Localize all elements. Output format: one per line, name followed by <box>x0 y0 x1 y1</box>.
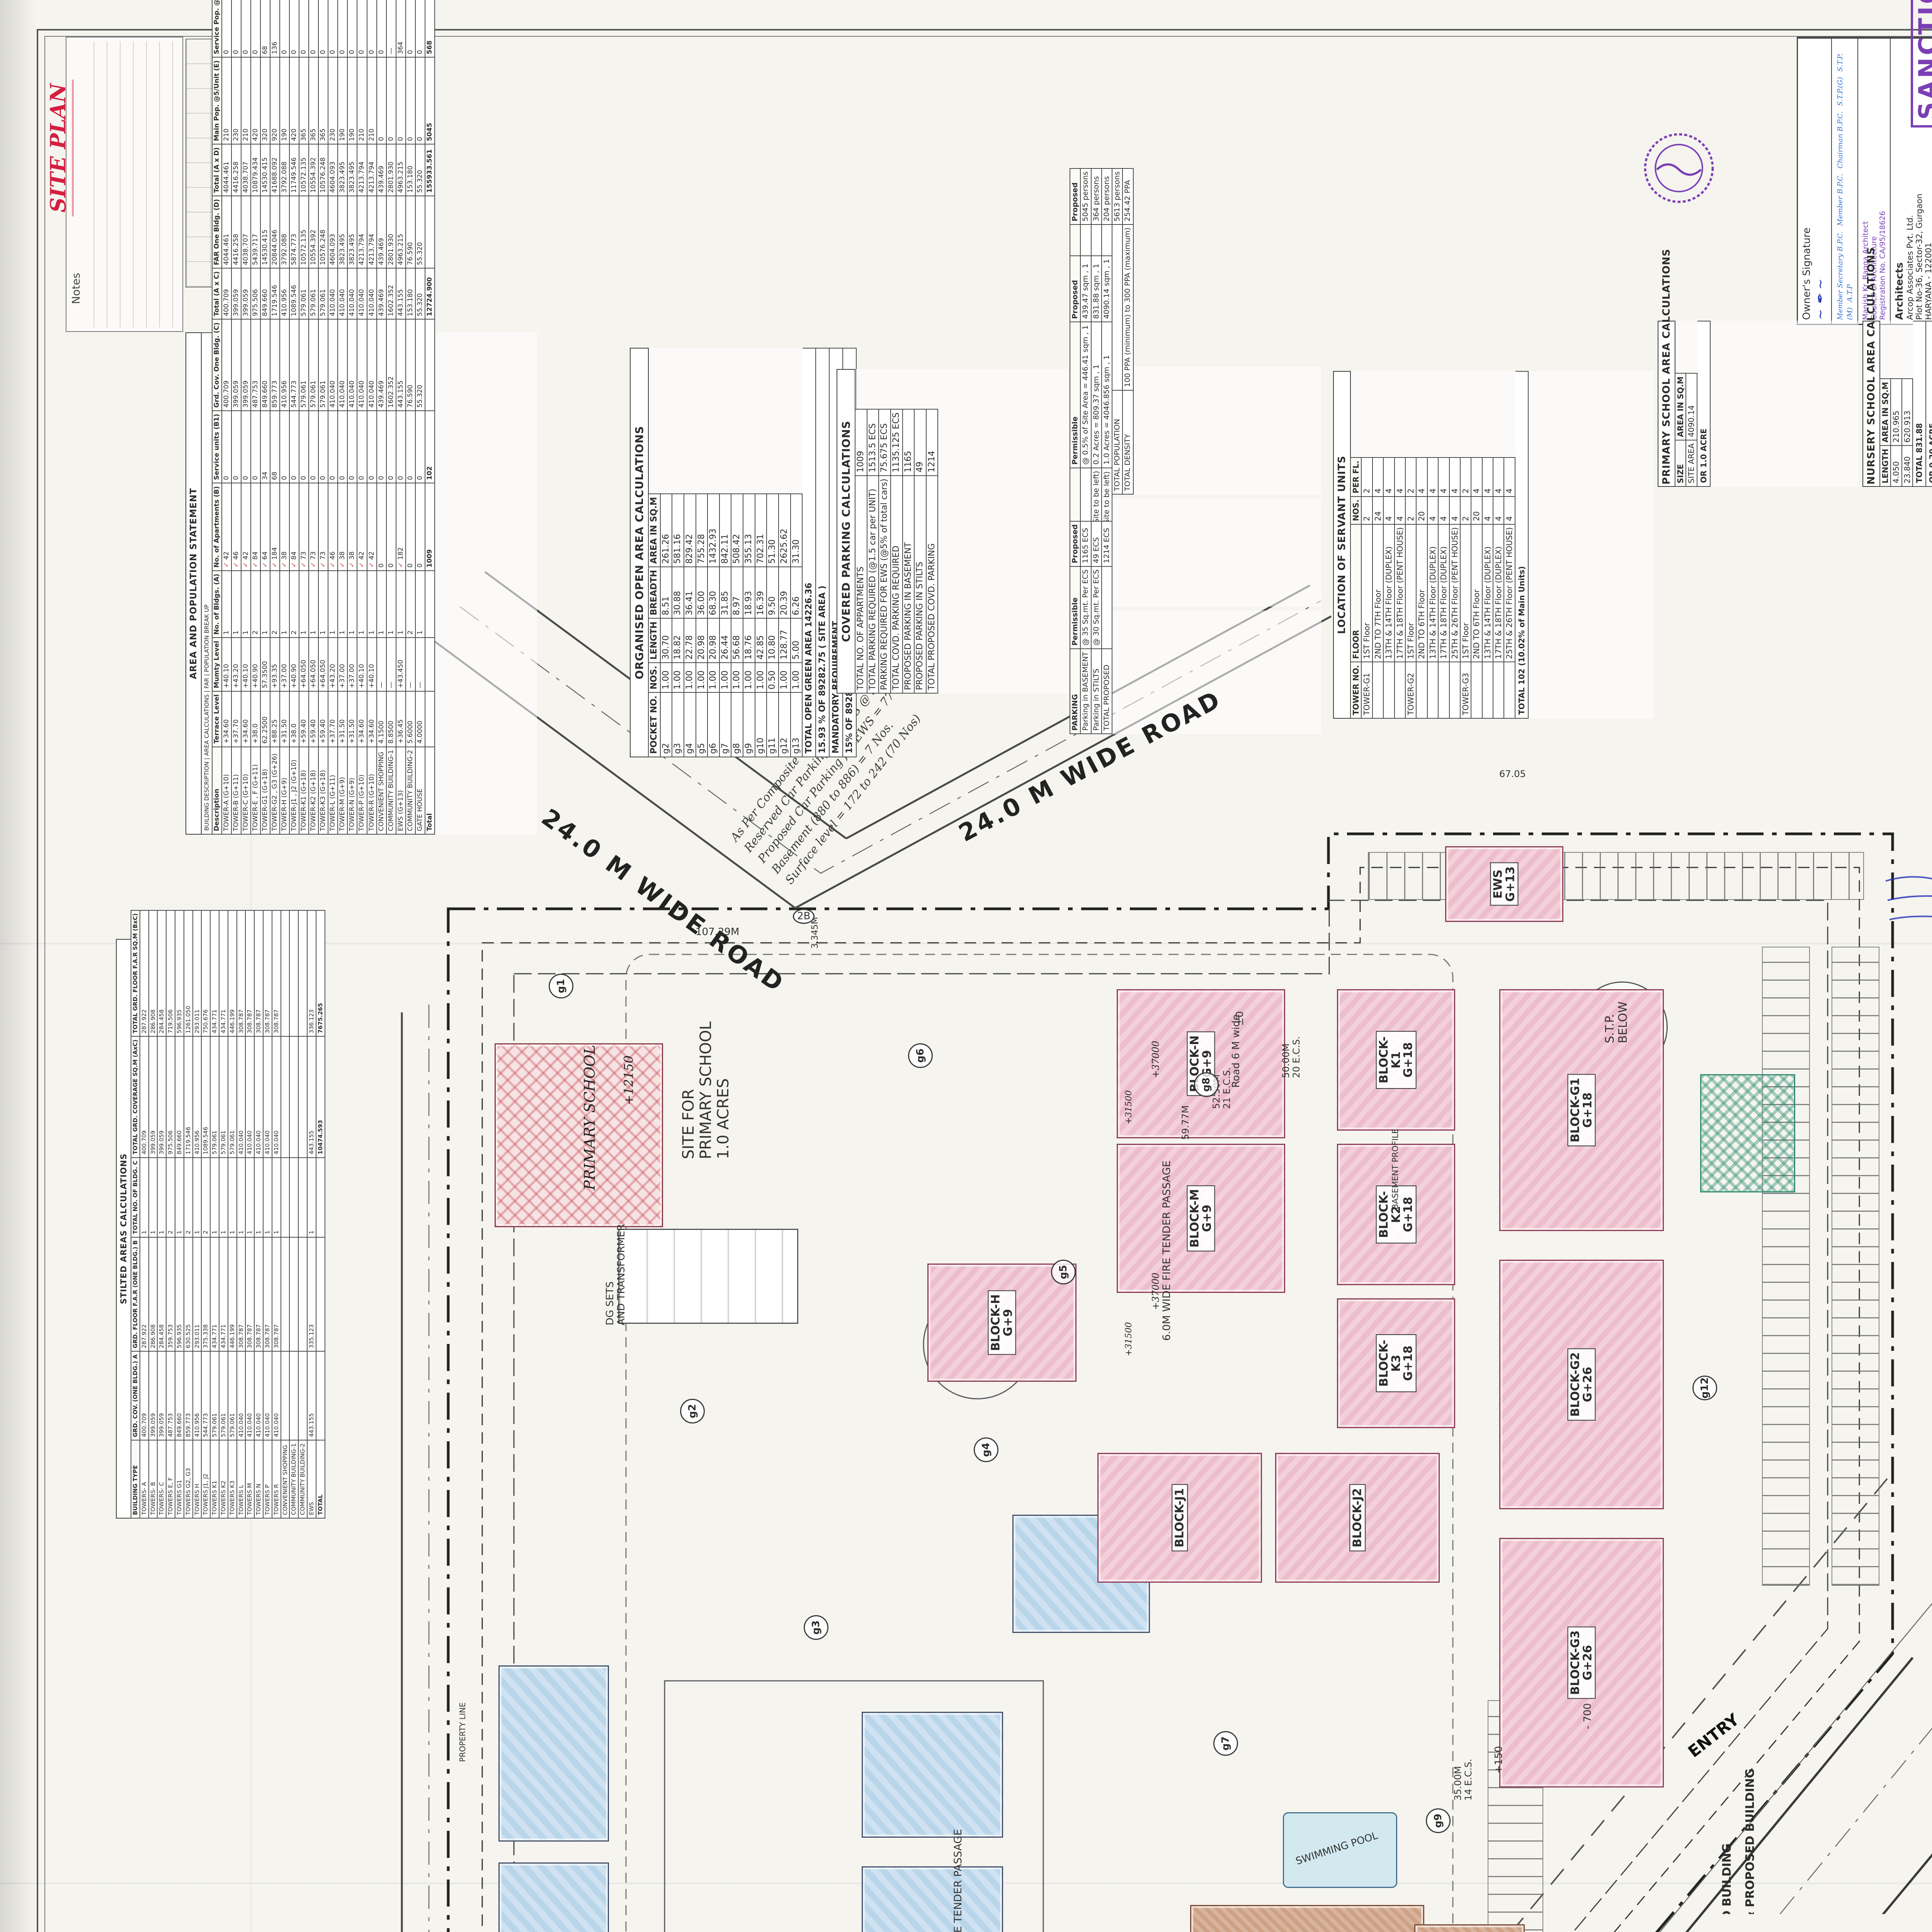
table-cell: 42.85 <box>755 618 767 663</box>
table-cell: 364 <box>396 0 406 57</box>
table-cell: 365 <box>318 57 328 144</box>
table-cell: 4 <box>1438 497 1449 524</box>
table-stilted: STILTED AREAS CALCULATIONSBUILDING TYPEG… <box>116 939 301 1519</box>
table-cell: 76.590 <box>406 196 415 268</box>
table-cell: 399.059 <box>157 1351 166 1440</box>
table-cell: 0 <box>406 483 415 571</box>
table-total-cell: 568 <box>425 0 435 57</box>
table-row: g101.0042.8516.39702.31 <box>755 494 767 757</box>
table-cell: +88.25 <box>270 691 280 747</box>
table-cell: 579.061 <box>228 1351 237 1440</box>
table-row: TOWER-P (G+10)+34.60+40.101✓ 420410.0404… <box>357 0 367 834</box>
table-cell: ✓ 42 <box>241 483 251 571</box>
table-cell <box>298 1036 307 1157</box>
pocket-g12: g12 <box>1692 1376 1717 1400</box>
table-cell: 4 <box>1482 457 1493 497</box>
table-cell: g2 <box>660 692 672 757</box>
table-cell: 286.908 <box>149 910 158 1037</box>
block-label: BLOCK-K1 G+18 <box>1376 1031 1417 1089</box>
table-cell: 287.922 <box>140 910 149 1037</box>
table-cell: +37.00 <box>347 638 357 691</box>
table-cell: 0 <box>328 0 338 57</box>
table-cell: 2 <box>1361 497 1372 524</box>
table-cell: 487.753 <box>251 319 260 411</box>
table-cell: 443.155 <box>307 1036 316 1157</box>
pocket-g7: g7 <box>1213 1731 1238 1756</box>
table-row: g31.0018.8230.88581.16 <box>672 494 684 757</box>
table-cell: 4213.794 <box>357 144 367 196</box>
table-cell: 36.00 <box>696 567 708 618</box>
table-cell <box>1504 662 1515 718</box>
table-cell: 1 <box>210 1158 219 1237</box>
block-label: EWS G+13 <box>1490 862 1519 906</box>
table-cell: 1 <box>386 571 396 638</box>
table-cell: 30.70 <box>660 618 672 663</box>
table-cell: 22.78 <box>684 618 696 663</box>
block-block-n: BLOCK-N G+9 <box>1117 989 1285 1138</box>
table-cell: 20844.046 <box>270 196 280 268</box>
table-cell <box>1493 662 1504 718</box>
table-row: TOWERS K3579.061446.1991579.061446.199 <box>228 910 237 1518</box>
table-cell: 76.590 <box>406 319 415 411</box>
table-cell: 0 <box>251 0 260 57</box>
block-label: BLOCK-G1 G+18 <box>1568 1074 1596 1146</box>
table-total-cell: 155933.561 <box>425 144 435 196</box>
table-cell: TOWERS- C <box>157 1440 166 1518</box>
table-cell: 579.061 <box>219 1351 228 1440</box>
table-cell: 1 <box>377 571 386 638</box>
table-cell: 446.199 <box>228 910 237 1037</box>
column-header: Service Pop. @2/Unit (F) <box>212 0 222 57</box>
column-header: Proposed <box>1070 168 1080 224</box>
red-check-mark: ✓ <box>300 560 308 568</box>
table-cell: 4213.794 <box>357 196 367 268</box>
table-cell: TOWER-P (G+10) <box>357 747 367 834</box>
data-table: TOTAL NO. OF APPARTMENTS1009TOTAL PARKIN… <box>855 409 938 694</box>
table-row: TOWERS N410.040308.7871410.040308.787 <box>254 910 263 1518</box>
block-label: BLOCK-G3 G+26 <box>1568 1626 1596 1699</box>
table-cell <box>298 910 307 1037</box>
table-cell: 2 <box>1460 497 1471 524</box>
table-title: PRIMARY SCHOOL AREA CALCULATIONS <box>1658 321 1675 487</box>
table-cell: 1.00 <box>672 663 684 692</box>
table-footer: TOTAL OPEN GREEN AREA 14226.36 <box>803 348 816 757</box>
red-check-mark: ✓ <box>252 560 259 568</box>
plan-label: 59.77M <box>1180 1105 1191 1140</box>
table-cell: 1135.125 ECS <box>891 409 903 475</box>
table-header-row: PARKINGPermissibleProposed <box>1070 521 1080 734</box>
block-community: COMMUNITY BUILDING <box>1190 1905 1424 1932</box>
table-row: TOWER-M (G+9)+31.50+37.001✓ 380410.04041… <box>338 0 347 834</box>
table-cell: +37.70 <box>328 691 338 747</box>
plan-label: 107.29M <box>696 927 739 938</box>
table-row: TOWERS M410.040308.7871410.040308.787 <box>245 910 254 1518</box>
drawing-sheet: SITE PLAN Notes <box>0 0 1932 1932</box>
table-cell: 439.469 <box>377 268 386 319</box>
table-cell: 375.338 <box>201 1237 210 1351</box>
table-row: TOTAL DENSITY100 PPA (minimum) to 300 PP… <box>1122 168 1133 494</box>
table-cell: COMMUNITY BUILDING-2 <box>298 1440 307 1518</box>
table-cell: +40.90 <box>251 638 260 691</box>
table-cell: 410.040 <box>367 319 377 411</box>
table-cell: TOWER-C (G+10) <box>241 747 251 834</box>
table-cell: Parking in STILTS <box>1091 649 1102 734</box>
table-cell: 36.41 <box>684 567 696 618</box>
table-cell: 359.753 <box>166 1237 175 1351</box>
table-cell: 0 <box>396 57 406 144</box>
table-cell: 0 <box>377 57 386 144</box>
table-cell: @ 35 Sq.mt. Per ECS <box>1080 566 1091 649</box>
column-header: GRD. FLOOR F.A.R (ONE BLDG.) B <box>131 1237 140 1351</box>
plan-label: DG SETS AND TRANSFORMER <box>605 1224 627 1325</box>
table-row: SITE AREA4090.14 <box>1686 373 1697 486</box>
table-cell: 0 <box>328 411 338 483</box>
table-cell: 41688.092 <box>270 144 280 196</box>
table-cell: 1 <box>149 1158 158 1237</box>
electric-substation-patch <box>1700 1074 1795 1192</box>
table-cell: 400.709 <box>140 1036 149 1157</box>
table-cell: 1 <box>157 1158 166 1237</box>
table-cell: 365 <box>299 57 309 144</box>
table-cell: ✓ 84 <box>289 483 299 571</box>
table-nursery_school-content: NURSERY SCHOOL AREA CALCULATIONSLENGTHAR… <box>1862 321 1932 487</box>
table-cell: 1.00 <box>660 663 672 692</box>
table-cell: 1 <box>222 571 231 638</box>
table-cell: TOWER-H (G+9) <box>280 747 289 834</box>
table-header-row: TOWER NO.FLOORNOS.PER FL. <box>1350 457 1361 718</box>
table-row: TOWERS- A400.709287.9221400.709287.922 <box>140 910 149 1518</box>
table-cell: 16.39 <box>755 567 767 618</box>
table-cell: 20.98 <box>707 618 719 663</box>
table-servant-units: LOCATION OF SERVANT UNITSTOWER NO.FLOORN… <box>1333 371 1654 719</box>
table-cell: 0 <box>386 483 396 571</box>
plan-label: BASEMENT PROFILE <box>1391 1129 1400 1209</box>
table-cell: 410.040 <box>263 1036 272 1157</box>
table-row: TOWERS- B399.059286.9081399.059286.908 <box>149 910 158 1518</box>
table-cell: TOWERS K2 <box>219 1440 228 1518</box>
table-cell: 204 persons <box>1102 168 1112 224</box>
table-cell <box>289 910 298 1037</box>
table-row: 13TH & 14TH Floor (DUPLEX)44 <box>1383 457 1394 718</box>
table-cell: 1.00 <box>684 663 696 692</box>
table-cell: 439.469 <box>377 144 386 196</box>
table-cell: TOTAL PROPOSED COVD. PARKING <box>926 476 938 693</box>
table-cell: 5.00 <box>791 618 803 663</box>
red-check-mark: ✓ <box>397 560 405 568</box>
table-total-cell: 7675.265 <box>316 910 325 1037</box>
block-label: BLOCK-J2 <box>1349 1484 1366 1551</box>
table-cell: 1165 ECS <box>1080 521 1091 566</box>
table-row: 17TH & 18TH Floor (DUPLEX)44 <box>1438 457 1449 718</box>
column-header: FLOOR <box>1350 524 1361 662</box>
table-cell: 1513.5 ECS <box>867 409 879 475</box>
table-cell: 434.771 <box>210 1237 219 1351</box>
table-total-cell: 10474.593 <box>316 1036 325 1157</box>
table-row: TOTAL PROPOSED COVD. PARKING1214 <box>926 409 938 693</box>
column-header: Mumty Level <box>212 638 222 691</box>
table-cell <box>1102 566 1112 649</box>
table-cell: 4213.794 <box>367 196 377 268</box>
table-cell: 1089.546 <box>289 268 299 319</box>
table-header-row: BUILDING TYPEGRD. COV. (ONE BLDG.) AGRD.… <box>131 910 140 1518</box>
table-cell <box>281 1158 290 1237</box>
table-cell: 920 <box>270 57 280 144</box>
red-check-mark: ✓ <box>329 560 337 568</box>
table-cell: 0 <box>415 411 425 483</box>
red-check-mark: ✓ <box>281 560 288 568</box>
table-row: 25TH & 26TH Floor (PENT HOUSE)44 <box>1504 457 1515 718</box>
table-cell: 1602.352 <box>386 319 396 411</box>
table-cell: 10576.248 <box>318 196 328 268</box>
plan-label: 50.00M 20 E.C.S. <box>1281 1036 1302 1078</box>
column-header: POCKET NO. <box>648 692 660 757</box>
table-cell: 849.660 <box>175 1351 184 1440</box>
table-row: 4.050210.965 <box>1891 379 1901 486</box>
column-header: PARKING <box>1070 649 1080 734</box>
table-cell: 286.908 <box>149 1237 158 1351</box>
table-cell: +38.0 <box>251 691 260 747</box>
table-cell: 4416.258 <box>231 144 241 196</box>
table-cell: 3823.495 <box>347 196 357 268</box>
table-cell: 308.787 <box>263 910 272 1037</box>
table-total-cell <box>425 319 435 411</box>
table-cell: 1 <box>193 1158 202 1237</box>
table-cell: 596.935 <box>175 910 184 1037</box>
column-header: Main Pop. @5/Unit (E) <box>212 57 222 144</box>
table-cell: 210.965 <box>1891 379 1901 446</box>
table-cell: 365 <box>309 57 318 144</box>
table-cell: 4 <box>1482 497 1493 524</box>
table-cell: TOWER-J1 , J2 (G+10) <box>289 747 299 834</box>
table-cell: 0.50 <box>767 663 779 692</box>
table-cell: 0 <box>231 0 241 57</box>
block-block-m: BLOCK-M G+9 <box>1117 1144 1285 1293</box>
table-cell: g9 <box>743 692 755 757</box>
table-cell: ✓ 73 <box>309 483 318 571</box>
table-cell: 0 <box>377 483 386 571</box>
table-total-row: Total100910212724.900155933.561504556854… <box>425 0 435 834</box>
table-cell: 2 <box>270 571 280 638</box>
table-cell: 1 <box>241 571 251 638</box>
table-cell: 308.787 <box>254 910 263 1037</box>
table-cell: COMMUNITY BUILDING-1 <box>289 1440 298 1518</box>
table-cell: 487.753 <box>166 1351 175 1440</box>
table-cell: 0 <box>367 411 377 483</box>
table-row: PROPOSED PARKING IN BASEMENT1165 <box>903 409 915 693</box>
table-cell: 579.061 <box>228 1036 237 1157</box>
table-cell: 210 <box>241 57 251 144</box>
table-covered_parking-content: COVERED PARKING CALCULATIONSTOTAL NO. OF… <box>837 369 1068 694</box>
table-cell: ✓ 38 <box>338 483 347 571</box>
table-cell: 2 <box>1361 457 1372 497</box>
table-total-cell: 5045 <box>425 57 435 144</box>
table-cell: 842.11 <box>719 494 731 567</box>
table-cell: 0 <box>318 0 328 57</box>
table-cell: 10554.392 <box>309 196 318 268</box>
paper-edge <box>0 0 37 1932</box>
table-cell: 410.040 <box>328 319 338 411</box>
block-label: BLOCK-H G+9 <box>988 1291 1016 1355</box>
table-cell: PROPOSED PARKING IN BASEMENT <box>903 476 915 693</box>
column-header: SIZE <box>1675 440 1686 486</box>
table-cell: 3823.495 <box>347 144 357 196</box>
table-covered-parking: COVERED PARKING CALCULATIONSTOTAL NO. OF… <box>837 369 1068 694</box>
parking-stalls <box>1368 852 1864 900</box>
table-cell <box>1416 662 1427 718</box>
data-table: PARKINGPermissibleProposedParking in BAS… <box>1070 521 1112 734</box>
table-cell: 410.040 <box>254 1351 263 1440</box>
column-header: Terrace Level <box>212 691 222 747</box>
table-cell: TOWER-B (G+11) <box>231 747 241 834</box>
table-cell: TOWERS K1 <box>210 1440 219 1518</box>
table-cell: 579.061 <box>309 319 318 411</box>
table-cell: 1 <box>415 571 425 638</box>
table-cell <box>289 1237 298 1351</box>
table-row: TOWERS J1, J2544.773375.33821089.546750.… <box>201 910 210 1518</box>
table-cell: 579.061 <box>299 268 309 319</box>
table-cell: 284.458 <box>157 910 166 1037</box>
red-check-mark: ✓ <box>271 560 279 568</box>
table-cell: 2ND TO 7TH Floor <box>1372 524 1383 662</box>
table-cell: 0 <box>231 411 241 483</box>
table-cell: TOWER-K2 (G+18) <box>309 747 318 834</box>
table-cell: 0 <box>241 0 251 57</box>
table-cell: 4 <box>1416 457 1427 497</box>
column-header: LENGTH <box>1880 446 1891 486</box>
red-check-mark: ✓ <box>290 560 298 568</box>
table-stilted-content: STILTED AREAS CALCULATIONSBUILDING TYPEG… <box>116 939 301 1519</box>
table-cell: 4 <box>1427 457 1438 497</box>
table-total-row: TOTAL10474.5937675.265 <box>316 910 325 1518</box>
table-cell: 410.040 <box>254 1036 263 1157</box>
pocket-g1: g1 <box>549 974 573 998</box>
table-cell: 4 <box>1395 457 1405 497</box>
table-total-cell <box>316 1158 325 1237</box>
table-row: PARKING REQUIRED FOR EWS (@5% of total c… <box>879 409 891 693</box>
table-row: TOWER-G1 (G+18)62.250057.35001✓ 6434849.… <box>260 0 270 834</box>
table-cell: +64.050 <box>299 638 309 691</box>
plan-label: +37000 <box>1151 1273 1161 1310</box>
table-header-row: SIZEAREA IN SQ.M <box>1675 373 1686 486</box>
table-row: 25TH & 26TH Floor (PENT HOUSE)44 <box>1449 457 1460 718</box>
plan-label: +150 <box>1493 1746 1505 1774</box>
table-cell: 10572.135 <box>299 144 309 196</box>
table-cell: 1602.352 <box>386 268 396 319</box>
column-header: Description <box>212 747 222 834</box>
table-cell: g12 <box>779 692 791 757</box>
table-cell: 1 <box>328 571 338 638</box>
table-cell: 1.00 <box>755 663 767 692</box>
plan-label: 6.0M WIDE FIRE TENDER PASSAGE <box>952 1829 964 1932</box>
table-cell: ✓ 73 <box>318 483 328 571</box>
table-cell: 439.469 <box>377 319 386 411</box>
table-cell: 410.040 <box>263 1351 272 1440</box>
table-cell: — <box>415 638 425 691</box>
table-row: TOWER-A (G+10)+34.60+40.101✓ 420400.7094… <box>222 0 231 834</box>
table-cell: 0 <box>318 411 328 483</box>
table-cell: +40.90 <box>289 638 299 691</box>
table-cell: 1.00 <box>696 663 708 692</box>
table-row: TOWERS K2579.061434.7711579.061434.771 <box>219 910 228 1518</box>
table-cell: 0 <box>222 0 231 57</box>
table-cell: TOTAL COVD. PARKING REQUIRED <box>891 476 903 693</box>
table-cell: 10554.392 <box>309 144 318 196</box>
table-cell: 410.040 <box>357 268 367 319</box>
column-header: No. of Apartments (B) <box>212 483 222 571</box>
table-title: AREA AND POPULATION STATEMENT <box>185 332 202 835</box>
table-cell: 4.050 <box>1891 446 1901 486</box>
table-cell: 56.68 <box>731 618 743 663</box>
table-cell: 23.840 <box>1902 446 1913 486</box>
column-header: AREA IN SQ.M <box>1880 379 1891 446</box>
column-header: Permissible <box>1070 322 1080 468</box>
parking-stalls <box>1762 947 1810 1586</box>
table-cell: TOWER-L (G+11) <box>328 747 338 834</box>
table-cell: 4090.14 sqm , 1 <box>1102 256 1112 322</box>
plan-label: 67.05 <box>1499 769 1526 779</box>
table-cell: 1 <box>280 571 289 638</box>
plan-label: 6.0M WIDE FIRE TENDER PASSAGE <box>1161 1160 1173 1341</box>
notes-mini-title: Notes <box>70 273 82 304</box>
table-cell: 1 <box>347 571 357 638</box>
table-cell: 190 <box>338 57 347 144</box>
block-block-g2: BLOCK-G2 G+26 <box>1499 1260 1664 1509</box>
table-cell: 0 <box>386 57 396 144</box>
table-cell: — <box>386 638 396 691</box>
table-row: 13TH & 14TH Floor (DUPLEX)44 <box>1427 457 1438 718</box>
data-table: DescriptionTerrace LevelMumty LevelNo. o… <box>212 0 435 835</box>
plan-label: PROPERTY LINE <box>458 1702 467 1762</box>
table-cell: 308.787 <box>237 1237 246 1351</box>
table-cell: 1 <box>338 571 347 638</box>
table-cell: 4038.707 <box>241 144 251 196</box>
table-cell: 859.773 <box>184 1351 193 1440</box>
table-cell: TOWERS L <box>237 1440 246 1518</box>
table-cell: 1261.050 <box>184 910 193 1037</box>
table-cell: 1089.546 <box>201 1036 210 1157</box>
pocket-g9: g9 <box>1426 1808 1451 1833</box>
table-footer: OR 1.0 ACRE <box>1697 321 1711 487</box>
table-cell: 31.30 <box>791 494 803 567</box>
table-cell <box>281 1351 290 1440</box>
table-cell: 308.787 <box>263 1237 272 1351</box>
table-cell: 410.956 <box>193 1036 202 1157</box>
red-check-mark: ✓ <box>319 560 327 568</box>
block-block-k1: BLOCK-K1 G+18 <box>1337 989 1455 1131</box>
table-row: TOWER-H (G+9)+31.50+37.001✓ 380410.95641… <box>280 0 289 834</box>
table-row: CONVENIENT SHOPPING4.1500—100439.469439.… <box>377 0 386 834</box>
table-cell <box>1112 224 1122 390</box>
pocket-g3: g3 <box>804 1615 828 1640</box>
table-cell: 579.061 <box>309 268 318 319</box>
pocket-g5: g5 <box>1051 1260 1076 1284</box>
table-cell: 434.771 <box>219 1237 228 1351</box>
table-cell: 5439.717 <box>251 196 260 268</box>
table-cell: 0 <box>377 411 386 483</box>
table-cell: 1 <box>175 1158 184 1237</box>
table-cell: 750.676 <box>201 910 210 1037</box>
table-cell: 20.39 <box>779 567 791 618</box>
table-row: TOWERS P410.040308.7871410.040308.787 <box>263 910 272 1518</box>
table-row: COMMUNITY BUILDING-25.6000—20076.590153.… <box>406 0 415 834</box>
table-cell: TOWER-M (G+9) <box>338 747 347 834</box>
table-cell: 3792.088 <box>280 196 289 268</box>
table-cell: 1 <box>272 1158 281 1237</box>
table-cell: +59.40 <box>299 691 309 747</box>
table-row: TOWER-R (G+10)+34.60+40.101✓ 420410.0404… <box>367 0 377 834</box>
table-cell: 17TH & 18TH Floor (DUPLEX) <box>1493 524 1504 662</box>
table-cell: 1ST Floor <box>1405 524 1416 662</box>
